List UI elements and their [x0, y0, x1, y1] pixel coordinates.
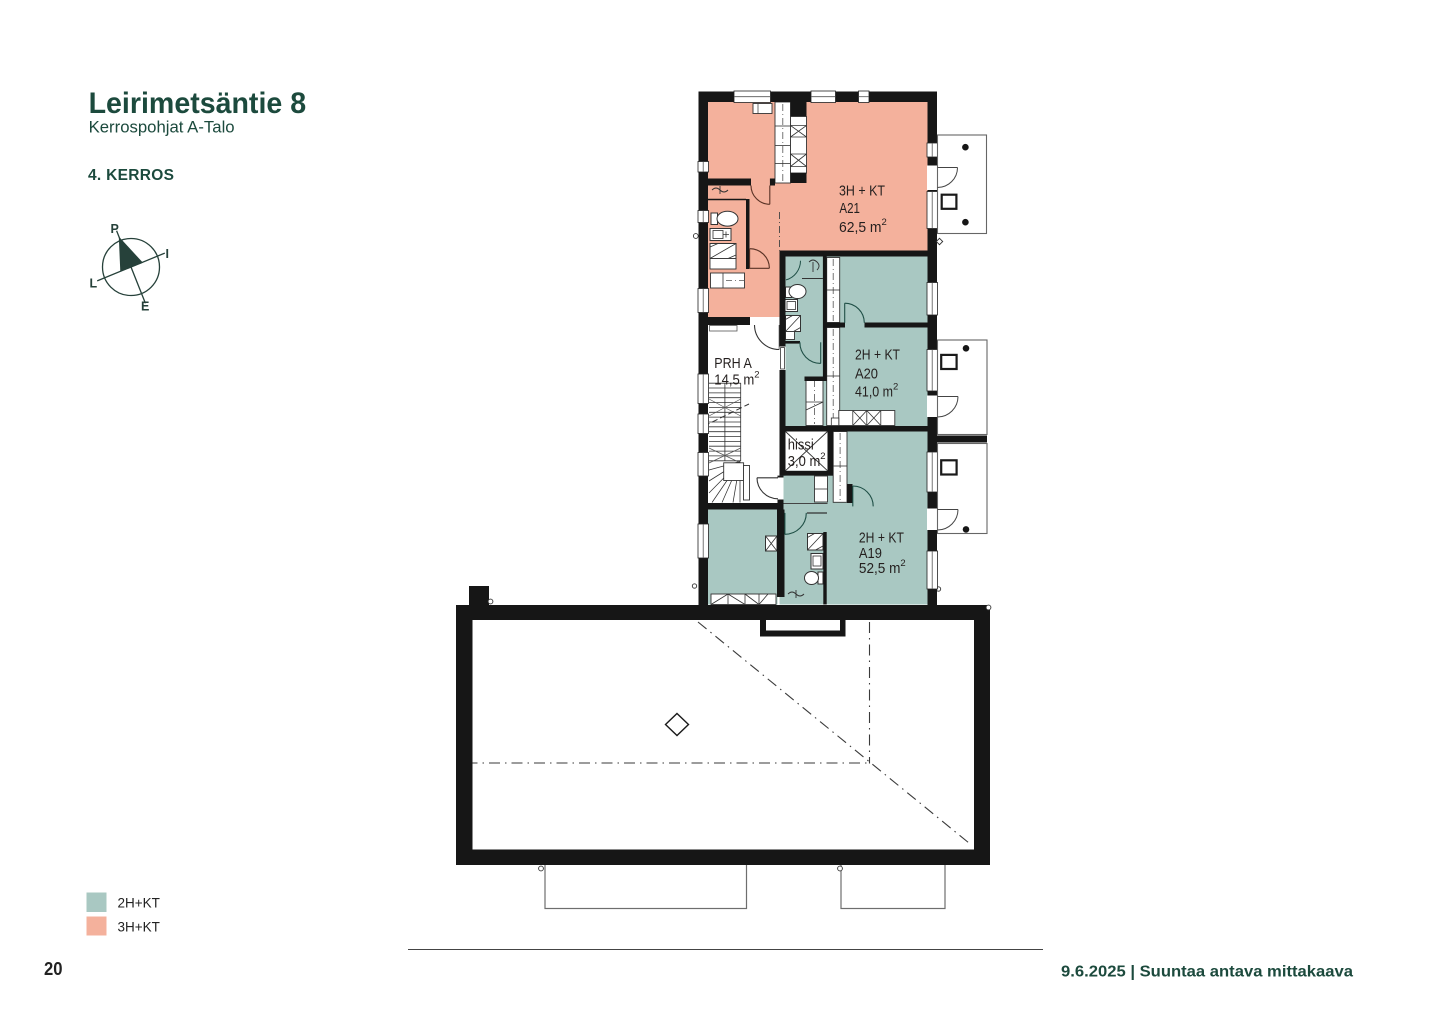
- svg-text:Leirimetsäntie 8: Leirimetsäntie 8: [89, 87, 307, 120]
- svg-text:L: L: [90, 277, 98, 291]
- svg-text:9.6.2025 | Suuntaa antava mitt: 9.6.2025 | Suuntaa antava mittakaava: [1061, 964, 1353, 981]
- svg-text:41,0 m2: 41,0 m2: [855, 382, 898, 401]
- svg-text:3H+KT: 3H+KT: [118, 920, 160, 935]
- svg-text:hissi: hissi: [788, 436, 814, 453]
- svg-text:2H + KT: 2H + KT: [859, 530, 904, 547]
- svg-text:3,0 m2: 3,0 m2: [788, 451, 826, 470]
- svg-text:Kerrospohjat A-Talo: Kerrospohjat A-Talo: [89, 119, 235, 137]
- svg-text:A20: A20: [855, 365, 878, 382]
- svg-text:62,5 m2: 62,5 m2: [839, 217, 887, 236]
- svg-text:4. KERROS: 4. KERROS: [88, 167, 174, 184]
- svg-text:A21: A21: [839, 200, 860, 217]
- svg-text:I: I: [166, 247, 169, 261]
- svg-text:PRH A: PRH A: [714, 355, 752, 372]
- svg-text:2H+KT: 2H+KT: [118, 896, 160, 911]
- svg-text:P: P: [111, 222, 119, 236]
- svg-text:E: E: [141, 300, 149, 314]
- svg-text:2H + KT: 2H + KT: [855, 347, 900, 364]
- svg-text:3H + KT: 3H + KT: [839, 183, 885, 200]
- svg-text:20: 20: [44, 959, 63, 979]
- svg-text:52,5 m2: 52,5 m2: [859, 558, 906, 577]
- svg-text:14,5 m2: 14,5 m2: [714, 370, 759, 389]
